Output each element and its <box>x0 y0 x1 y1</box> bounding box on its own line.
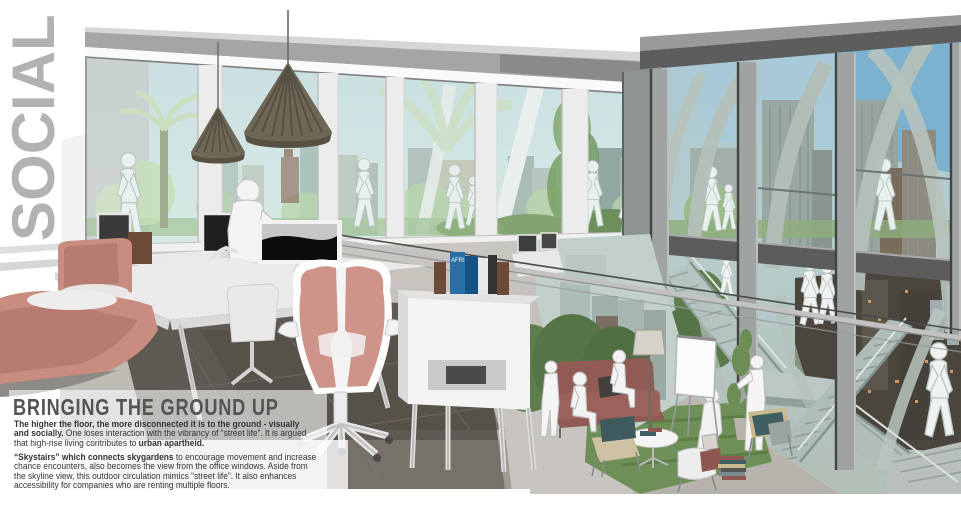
svg-text:AFRI: AFRI <box>451 258 465 264</box>
svg-text:SOCIAL: SOCIAL <box>0 14 67 241</box>
